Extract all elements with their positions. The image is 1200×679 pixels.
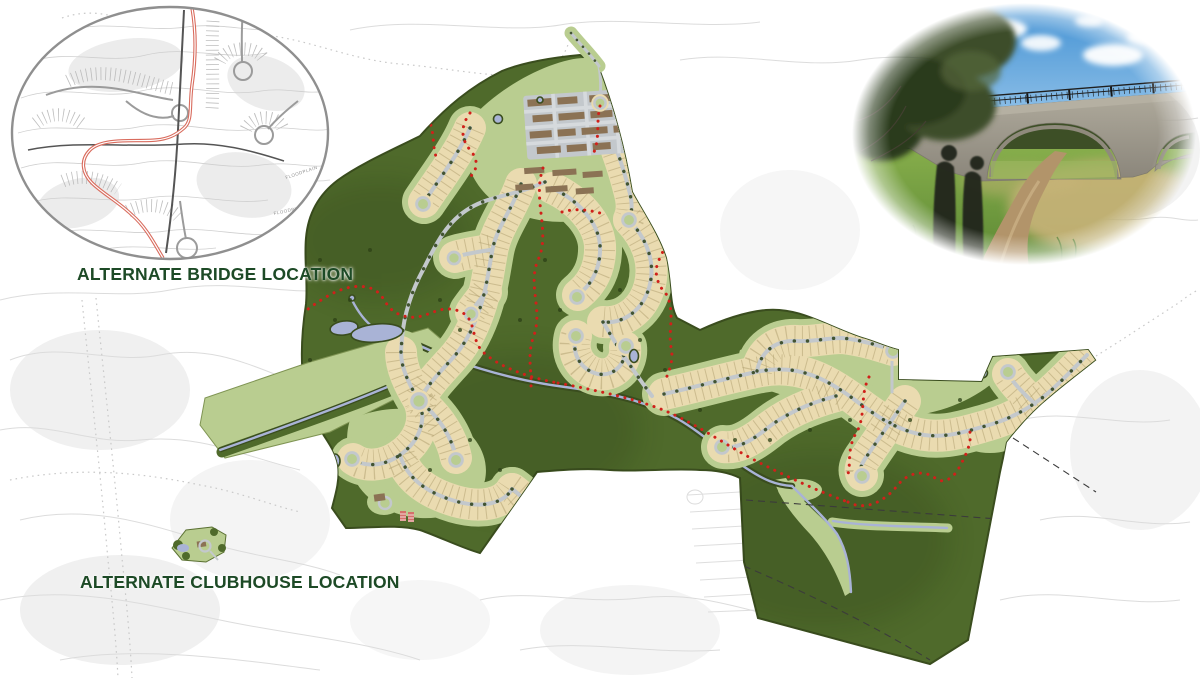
alternate-bridge-location-label: ALTERNATE BRIDGE LOCATION (77, 264, 353, 285)
alternate-bridge-inset-map: FLOODPLAIN FLOODPLAIN (6, 3, 336, 265)
clubhouse-alternate-site (172, 527, 226, 562)
bridge-photo-inset (851, 1, 1197, 267)
alternate-clubhouse-location-label: ALTERNATE CLUBHOUSE LOCATION (80, 572, 400, 593)
boundary-dash-offsite (1013, 438, 1096, 492)
plan-sheet: FLOODPLAIN FLOODPLAIN ALTERNATE BRIDGE L… (0, 0, 1200, 679)
alternate-bridge-inset: FLOODPLAIN FLOODPLAIN (6, 3, 336, 265)
bridge-trail-photo (851, 1, 1197, 267)
